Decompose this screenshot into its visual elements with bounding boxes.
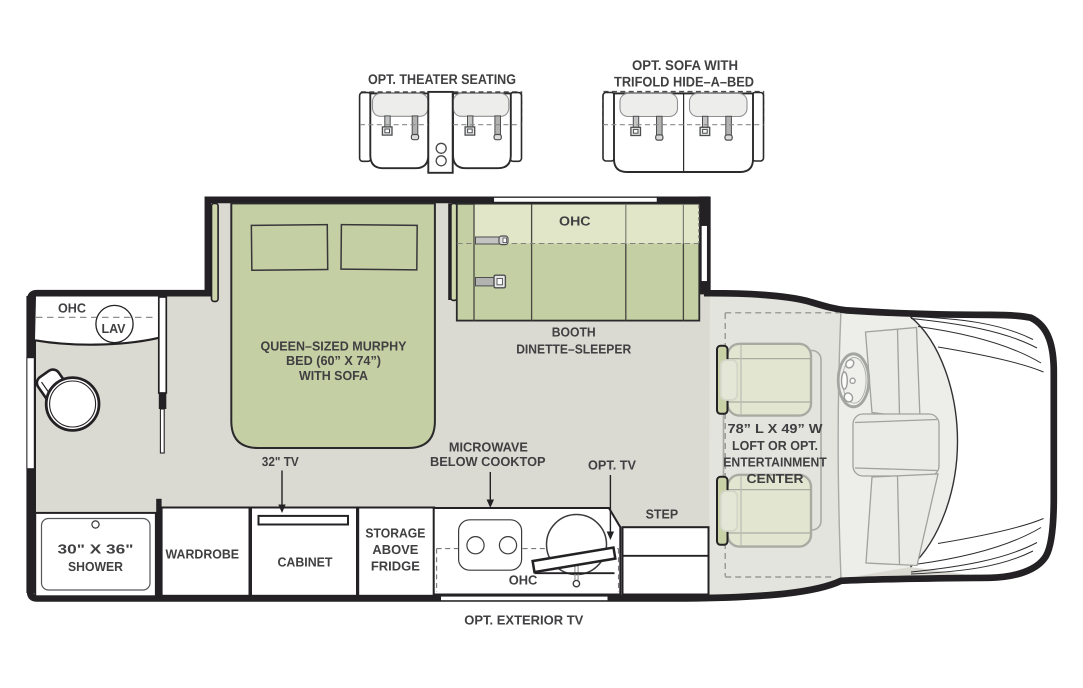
- svg-text:OPT. THEATER SEATING: OPT. THEATER SEATING: [368, 71, 516, 87]
- svg-text:CABINET: CABINET: [278, 555, 333, 570]
- svg-text:ABOVE: ABOVE: [372, 542, 418, 557]
- svg-text:STORAGE: STORAGE: [365, 526, 425, 541]
- svg-text:LOFT OR OPT.: LOFT OR OPT.: [732, 438, 818, 453]
- svg-text:ENTERTAINMENT: ENTERTAINMENT: [723, 455, 827, 470]
- svg-text:SHOWER: SHOWER: [68, 559, 124, 574]
- svg-text:BOOTH: BOOTH: [552, 325, 596, 340]
- svg-text:BELOW COOKTOP: BELOW COOKTOP: [430, 454, 546, 469]
- svg-text:DINETTE–SLEEPER: DINETTE–SLEEPER: [516, 342, 632, 357]
- svg-text:TRIFOLD HIDE–A–BED: TRIFOLD HIDE–A–BED: [614, 74, 754, 90]
- svg-text:STEP: STEP: [646, 507, 679, 522]
- svg-text:OPT. SOFA WITH: OPT. SOFA WITH: [632, 57, 738, 73]
- svg-text:OHC: OHC: [58, 301, 87, 316]
- svg-text:32" TV: 32" TV: [262, 454, 299, 469]
- svg-text:WARDROBE: WARDROBE: [166, 547, 240, 562]
- svg-text:78” L X 49” W: 78” L X 49” W: [728, 421, 824, 436]
- svg-text:OPT. TV: OPT. TV: [588, 458, 636, 473]
- svg-text:OHC: OHC: [559, 214, 591, 229]
- svg-text:FRIDGE: FRIDGE: [371, 559, 420, 574]
- svg-text:OHC: OHC: [509, 572, 538, 587]
- svg-text:CENTER: CENTER: [747, 471, 805, 486]
- svg-text:QUEEN–SIZED MURPHY: QUEEN–SIZED MURPHY: [261, 338, 407, 353]
- svg-text:WITH SOFA: WITH SOFA: [299, 368, 369, 383]
- svg-text:OPT. EXTERIOR TV: OPT. EXTERIOR TV: [464, 612, 583, 627]
- svg-text:BED (60” X 74”): BED (60” X 74”): [286, 353, 381, 368]
- svg-text:MICROWAVE: MICROWAVE: [449, 440, 528, 455]
- svg-text:30" X 36": 30" X 36": [58, 542, 134, 557]
- svg-text:LAV: LAV: [102, 321, 126, 336]
